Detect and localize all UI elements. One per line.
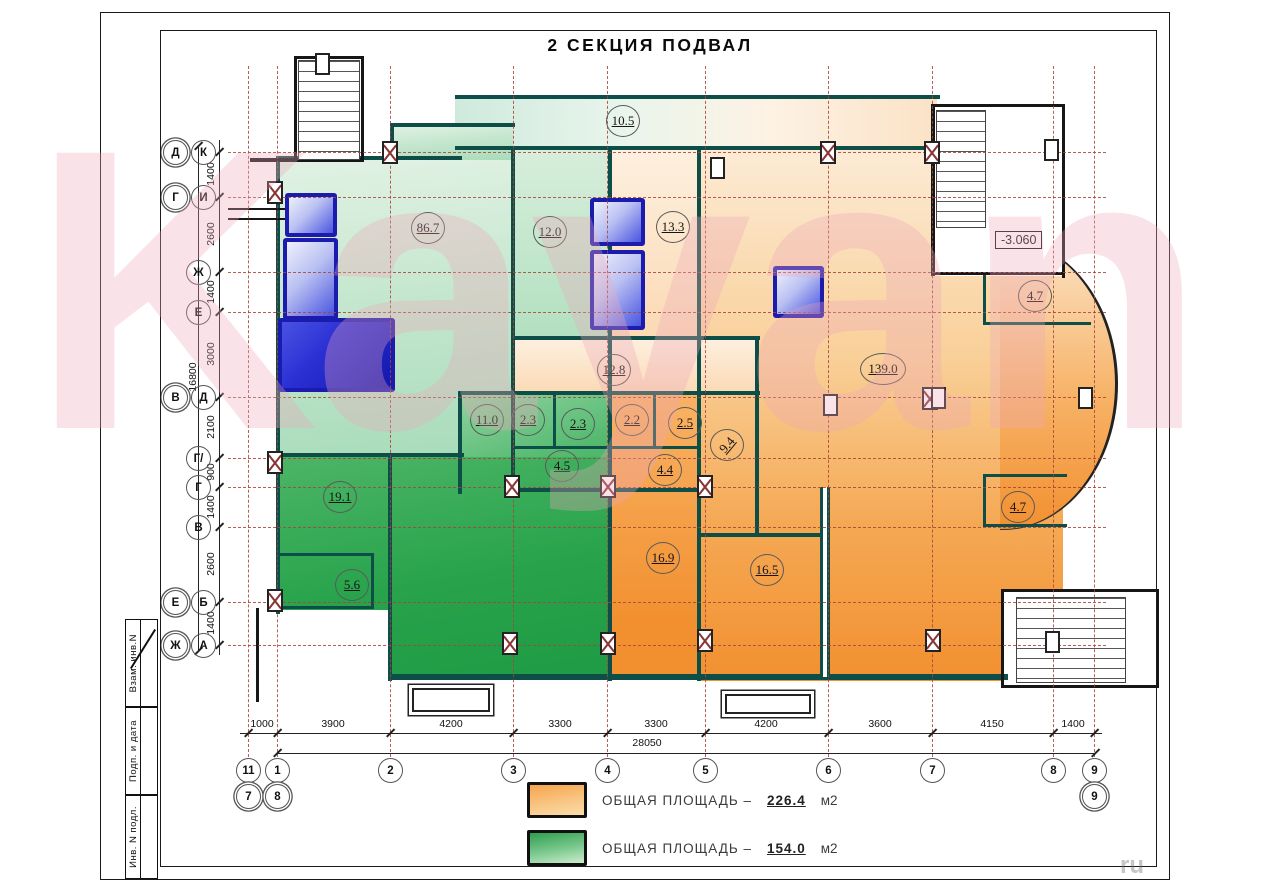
dim-tick (1091, 748, 1100, 757)
grid-line-horizontal (228, 312, 1106, 313)
column (931, 387, 946, 409)
room-area-label: 5.6 (335, 569, 369, 601)
room-area-value: 12.8 (603, 362, 626, 378)
elevator-shaft (278, 318, 395, 392)
elevation-mark: -3.060 (995, 231, 1042, 249)
titleblock-cell-podp: Подп. и дата (125, 707, 158, 795)
porch (725, 694, 811, 714)
axis-circle-bottom: 8 (265, 784, 290, 809)
wall (697, 533, 825, 537)
grid-line-vertical (932, 66, 933, 757)
drawing-title: 2 СЕКЦИЯ ПОДВАЛ (400, 35, 900, 56)
wall (458, 391, 760, 395)
elevator-shaft (773, 266, 824, 318)
wall (983, 474, 1067, 477)
room-area-label: 12.0 (533, 216, 567, 248)
axis-circle-bottom: 3 (501, 758, 526, 783)
wall (294, 56, 297, 162)
column-hatched (697, 475, 713, 498)
room-area-label: 2.5 (668, 407, 702, 439)
room-area-value: 5.6 (344, 577, 360, 593)
titleblock-divider (140, 620, 141, 706)
legend-swatch-green (527, 830, 587, 866)
stairs (936, 110, 986, 228)
column-hatched (502, 632, 518, 655)
column-hatched (504, 475, 520, 498)
axis-circle-bottom: 9 (1082, 758, 1107, 783)
titleblock-label: Подп. и дата (126, 708, 140, 794)
porch (412, 688, 490, 712)
room-area-label: 86.7 (411, 212, 445, 244)
column-hatched (267, 451, 283, 474)
wall (1001, 589, 1159, 592)
column-hatched (267, 589, 283, 612)
axis-circle-left: Д (191, 385, 216, 410)
room-area-label: 16.9 (646, 542, 680, 574)
axis-circle-left: Е (163, 590, 188, 615)
dimension-label: 4150 (967, 718, 1017, 730)
wall (276, 606, 374, 609)
dimension-label: 3900 (308, 718, 358, 730)
room-area-label: 139.0 (860, 353, 906, 385)
room-area-value: 2.3 (520, 412, 536, 428)
room-area-label: 16.5 (750, 554, 784, 586)
titleblock-cell-inv: Инв. N подл. (125, 795, 158, 879)
wall (553, 395, 556, 449)
wall (256, 608, 259, 702)
room-area-label: 10.5 (606, 105, 640, 137)
axis-circle-bottom: 8 (1041, 758, 1066, 783)
room-area-value: 4.7 (1010, 499, 1026, 515)
room-area-value: 12.0 (539, 224, 562, 240)
legend-value: 154.0 (767, 841, 806, 856)
dimension-label: 3300 (631, 718, 681, 730)
stairs (298, 60, 360, 160)
room-area-label: 19.1 (323, 481, 357, 513)
room-area-value: 4.5 (554, 458, 570, 474)
dimension-label: 2600 (205, 550, 217, 578)
grid-line-vertical (1094, 66, 1095, 757)
dimension-label: 2100 (205, 413, 217, 441)
column (315, 53, 330, 75)
grid-line-vertical (277, 66, 278, 757)
grid-line-horizontal (228, 197, 1106, 198)
room-area-value: 13.3 (662, 219, 685, 235)
dimension-label: 1000 (237, 718, 287, 730)
legend-row-orange: ОБЩАЯ ПЛОЩАДЬ – 226.4 м2 (527, 782, 838, 818)
room-area-label: 4.4 (648, 454, 682, 486)
dimension-label: 2600 (205, 220, 217, 248)
grid-line-horizontal (228, 645, 1106, 646)
axis-circle-left: Е (186, 300, 211, 325)
titleblock-cell-vzam: Взам. инв.N (125, 619, 158, 707)
axis-circle-left: Ж (163, 633, 188, 658)
column (710, 157, 725, 179)
axis-circle-bottom: 5 (693, 758, 718, 783)
axis-circle-bottom: 4 (595, 758, 620, 783)
wall (388, 674, 1008, 680)
wall (1001, 685, 1159, 688)
elevator-shaft (285, 193, 337, 237)
wall (1156, 589, 1159, 688)
column (823, 394, 838, 416)
drawing-sheet: 1000390042003300330042003600415014002805… (0, 0, 1280, 893)
column-hatched (267, 181, 283, 204)
wall (931, 104, 1065, 107)
legend-unit: м2 (821, 841, 838, 856)
titleblock-label: Инв. N подл. (126, 796, 140, 878)
wall (276, 453, 464, 457)
grid-line-vertical (390, 66, 391, 757)
dim-line-bottom (240, 733, 1102, 734)
elevator-shaft (590, 250, 645, 330)
axis-circle-left: Г (186, 475, 211, 500)
axis-circle-bottom: 1 (265, 758, 290, 783)
grid-line-horizontal (228, 487, 1106, 488)
room-area-label: 2.2 (615, 404, 649, 436)
wall (511, 336, 760, 340)
wall (361, 56, 364, 162)
column-hatched (925, 629, 941, 652)
axis-circle-left: В (163, 385, 188, 410)
legend-unit: м2 (821, 793, 838, 808)
dimension-label: 1400 (205, 278, 217, 306)
wall (755, 336, 759, 536)
axis-circle-left: А (191, 633, 216, 658)
grid-line-vertical (1053, 66, 1054, 757)
room-area-value: 16.9 (652, 550, 675, 566)
wall (371, 553, 374, 608)
column-hatched (924, 141, 940, 164)
room-area-value: 11.0 (476, 412, 498, 428)
legend-label: ОБЩАЯ ПЛОЩАДЬ – (602, 841, 752, 856)
column-hatched (600, 632, 616, 655)
wall (276, 553, 374, 556)
wall (390, 123, 515, 127)
column (1045, 631, 1060, 653)
axis-circle-bottom: 2 (378, 758, 403, 783)
dimension-total-label: 28050 (617, 737, 677, 749)
room-area-value: 86.7 (417, 220, 440, 236)
axis-circle-bottom: 6 (816, 758, 841, 783)
wall (458, 391, 462, 494)
axis-circle-bottom: 7 (236, 784, 261, 809)
room-area-value: 16.5 (756, 562, 779, 578)
axis-circle-left: Г (163, 185, 188, 210)
room-area-label: 4.5 (545, 450, 579, 482)
stairs (1016, 597, 1126, 683)
wall (1001, 589, 1004, 688)
room-area-value: 139.0 (868, 361, 897, 377)
zone-lg (390, 125, 513, 160)
dimension-label: 3000 (205, 340, 217, 368)
axis-circle-left: Б (191, 590, 216, 615)
column-hatched (820, 141, 836, 164)
grid-line-horizontal (228, 397, 1106, 398)
room-area-label: 9.4 (710, 429, 744, 461)
wall (455, 95, 940, 99)
legend-row-green: ОБЩАЯ ПЛОЩАДЬ – 154.0 м2 (527, 830, 838, 866)
room-area-label: 4.7 (1018, 280, 1052, 312)
dim-line-bottom-total (277, 753, 1095, 754)
room-area-value: 4.7 (1027, 288, 1043, 304)
column-hatched (697, 629, 713, 652)
wall (653, 395, 656, 449)
column-hatched (382, 141, 398, 164)
dimension-label: 3300 (535, 718, 585, 730)
wall (983, 322, 1091, 325)
room-area-label: 12.8 (597, 354, 631, 386)
room-area-value: 2.2 (624, 412, 640, 428)
floor-plan: 1000390042003300330042003600415014002805… (0, 0, 1280, 893)
dimension-label: 3600 (855, 718, 905, 730)
grid-line-horizontal (228, 272, 1106, 273)
grid-line-horizontal (228, 527, 1106, 528)
room-area-label: 13.3 (656, 211, 690, 243)
legend-value: 226.4 (767, 793, 806, 808)
column (1044, 139, 1059, 161)
room-area-value: 2.5 (677, 415, 693, 431)
axis-circle-left: Д (163, 140, 188, 165)
room-area-value: 10.5 (612, 113, 635, 129)
axis-circle-left: И (191, 185, 216, 210)
wall (1062, 104, 1065, 278)
grid-line-horizontal (228, 602, 1106, 603)
column-hatched (600, 475, 616, 498)
axis-circle-left: Ж (186, 260, 211, 285)
room-area-value: 2.3 (570, 416, 586, 432)
wall (983, 273, 986, 325)
axis-circle-bottom: 7 (920, 758, 945, 783)
axis-circle-left: Г/ (186, 446, 211, 471)
titleblock-divider (140, 708, 141, 794)
elevator-shaft (283, 238, 338, 320)
room-area-value: 9.4 (716, 434, 739, 457)
legend-swatch-orange (527, 782, 587, 818)
dimension-label: 4200 (426, 718, 476, 730)
grid-line-vertical (705, 66, 706, 757)
grid-line-vertical (248, 66, 249, 757)
wall (511, 446, 701, 449)
axis-circle-bottom: 9 (1082, 784, 1107, 809)
titleblock-divider (140, 796, 141, 878)
room-area-value: 4.4 (657, 462, 673, 478)
elevator-shaft (590, 198, 645, 246)
room-area-label: 2.3 (561, 408, 595, 440)
column (1078, 387, 1093, 409)
room-area-label: 4.7 (1001, 491, 1035, 523)
dimension-label: 1400 (1048, 718, 1098, 730)
grid-line-horizontal (228, 152, 1106, 153)
room-area-label: 2.3 (511, 404, 545, 436)
legend-label: ОБЩАЯ ПЛОЩАДЬ – (602, 793, 752, 808)
dimension-label: 4200 (741, 718, 791, 730)
wall (983, 474, 986, 527)
room-area-value: 19.1 (329, 489, 352, 505)
axis-circle-bottom: 11 (236, 758, 261, 783)
dimension-label: 1400 (205, 493, 217, 521)
axis-circle-left: В (186, 515, 211, 540)
zone-st (455, 97, 937, 150)
axis-circle-left: К (191, 140, 216, 165)
zone-pe (513, 338, 758, 395)
room-area-label: 11.0 (470, 404, 504, 436)
